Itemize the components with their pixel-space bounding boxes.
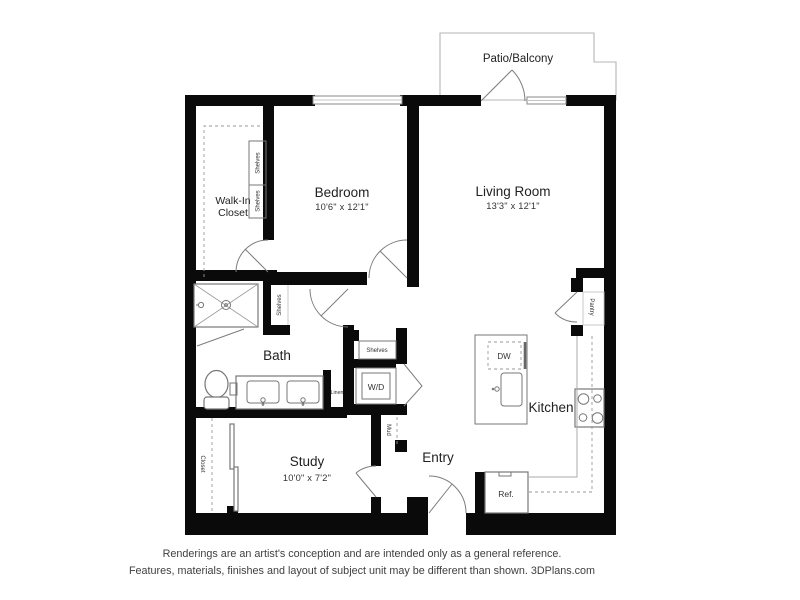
wall-kitchen-entry-stub: [475, 472, 485, 513]
island-sink: [501, 373, 522, 406]
study-door: [356, 466, 376, 497]
entry-door: [429, 476, 466, 513]
study-label: Study: [290, 454, 325, 469]
vanity: [230, 376, 323, 409]
study-dims: 10'0" x 7'2": [283, 473, 331, 483]
shower-door: [197, 329, 244, 346]
linen-label: Linen: [331, 390, 344, 396]
dw-label: DW: [497, 352, 511, 361]
walkin-closet-door: [236, 240, 268, 272]
living-room-label: Living Room: [475, 184, 550, 199]
pantry-door: [555, 292, 577, 322]
patio-balcony: [440, 33, 616, 100]
disclaimer-line-1: Renderings are an artist's conception an…: [163, 548, 562, 560]
stove: [575, 389, 604, 427]
wall-pantry-bottom-stub: [571, 325, 583, 336]
bedroom-door: [369, 240, 407, 278]
bath-label: Bath: [263, 348, 291, 363]
walk-in-closet-label-2: Closet: [218, 207, 248, 219]
bath-door: [310, 289, 348, 327]
wall-wd-right: [396, 328, 407, 364]
hall-shelves-label: Shelves: [366, 348, 387, 354]
study-closet-sliding-doors: [212, 418, 238, 512]
wall-top-mid: [400, 95, 481, 106]
wall-study-right-top: [371, 415, 381, 466]
walk-in-closet-label-1: Walk-In: [215, 195, 250, 207]
toilet: [204, 371, 229, 410]
living-room-dims: 13'3" x 12'1": [486, 201, 540, 211]
closet-shelves-lower-label: Shelves: [256, 190, 262, 211]
wall-bedroom-bottom: [263, 272, 367, 285]
wall-top-left: [185, 95, 315, 106]
wall-under-wd: [343, 404, 407, 415]
wall-bath-niche-left: [263, 283, 271, 327]
bath-shelves-label: Shelves: [277, 294, 283, 315]
mud-label: Mud: [385, 424, 391, 436]
wall-bottom-right: [466, 513, 616, 535]
wd-bifold-door: [404, 364, 422, 406]
entry-label: Entry: [422, 450, 454, 465]
kitchen-label: Kitchen: [528, 400, 573, 415]
disclaimer: Renderings are an artist's conception an…: [129, 548, 595, 577]
patio-outline: [440, 33, 616, 100]
wall-pantry-top: [576, 268, 604, 278]
shower: [194, 284, 258, 327]
patio-label: Patio/Balcony: [483, 53, 554, 65]
wall-shelves-stub: [343, 330, 359, 341]
wall-bedroom-living: [407, 106, 419, 287]
ref-label: Ref.: [498, 489, 514, 499]
pantry-label: Pantry: [588, 298, 594, 315]
wd-label: W/D: [368, 382, 385, 392]
wall-bath-niche-bottom: [263, 325, 290, 335]
wall-entry-jamb: [407, 497, 428, 513]
disclaimer-line-2: Features, materials, finishes and layout…: [129, 565, 595, 577]
wall-right: [604, 100, 616, 535]
bedroom-dims: 10'6" x 12'1": [315, 202, 369, 212]
bedroom-label: Bedroom: [315, 185, 370, 200]
closet-shelves-upper-label: Shelves: [256, 152, 262, 173]
wall-study-right-bottom: [371, 497, 381, 517]
wall-under-shelves: [348, 359, 396, 368]
kitchen-island: [475, 335, 527, 424]
floorplan-page: Patio/Balcony Bedroom 10'6" x 12'1" Livi…: [0, 0, 800, 600]
study-closet-label: Closet: [199, 455, 205, 472]
wall-bottom-left: [185, 513, 428, 535]
floorplan-drawing: Patio/Balcony Bedroom 10'6" x 12'1" Livi…: [0, 0, 800, 600]
wall-pantry-left-stub: [571, 278, 583, 292]
wall-closet-bedroom: [263, 106, 274, 240]
